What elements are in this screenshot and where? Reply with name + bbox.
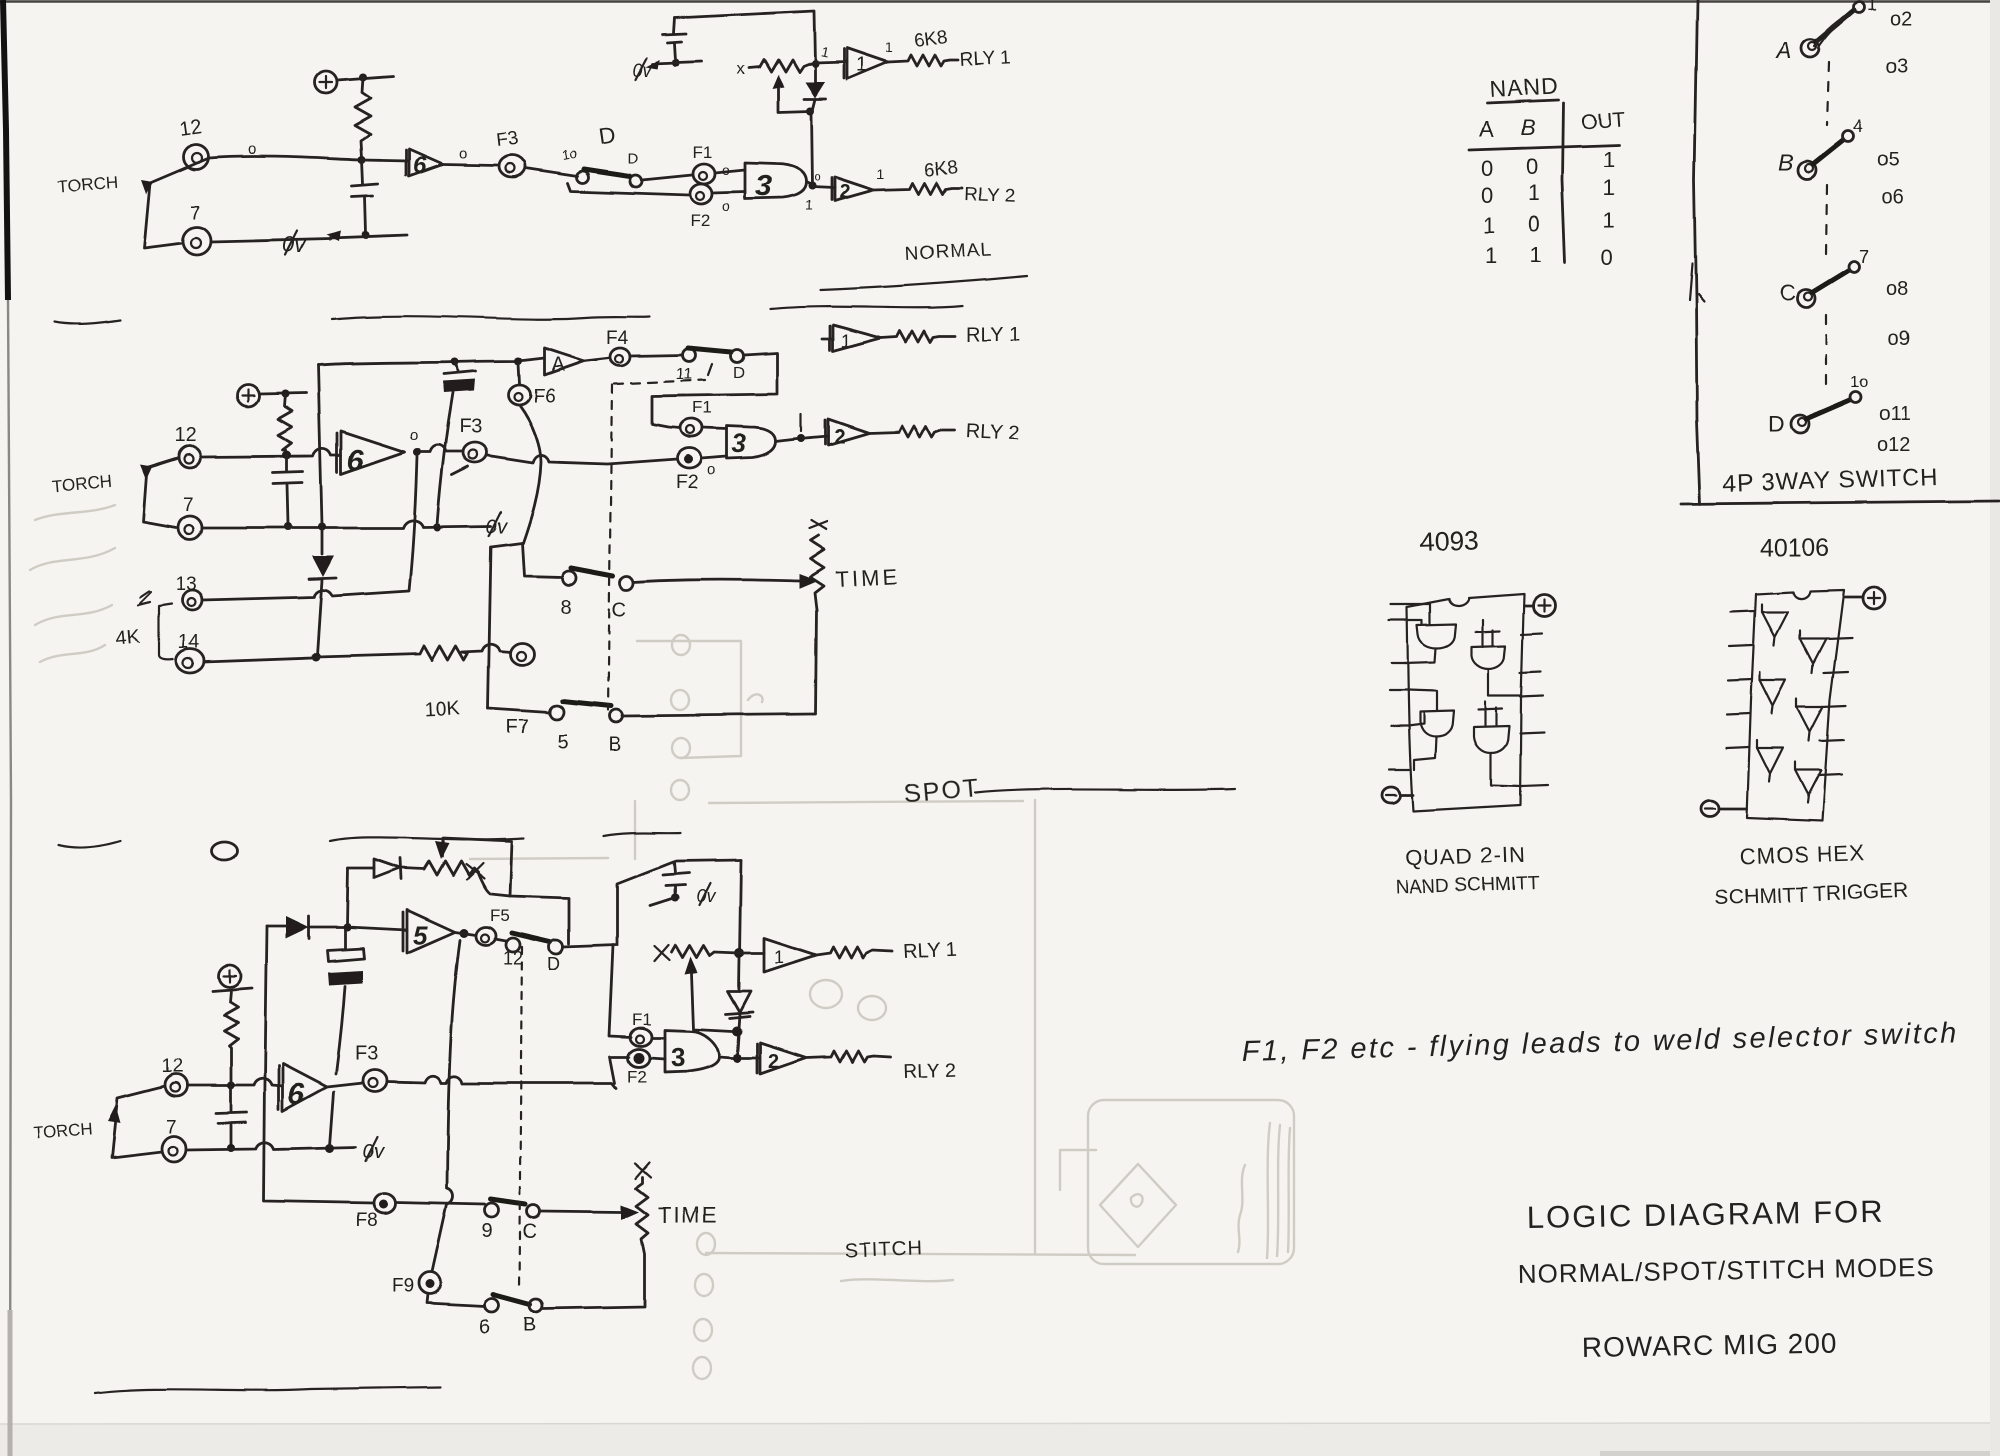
- svg-text:D: D: [547, 954, 560, 974]
- svg-text:4K: 4K: [115, 626, 142, 650]
- svg-text:1: 1: [877, 166, 885, 182]
- svg-text:13: 13: [176, 574, 197, 595]
- svg-text:1: 1: [856, 54, 867, 76]
- svg-text:o: o: [410, 427, 418, 444]
- svg-text:6K8: 6K8: [913, 27, 949, 52]
- svg-text:1: 1: [774, 947, 784, 967]
- svg-text:F1: F1: [693, 143, 713, 162]
- svg-text:8: 8: [560, 597, 571, 619]
- svg-text:3: 3: [671, 1042, 685, 1072]
- svg-text:F5: F5: [490, 906, 510, 925]
- svg-text:QUAD 2-IN: QUAD 2-IN: [1405, 842, 1526, 871]
- svg-text:C: C: [1779, 280, 1796, 306]
- svg-text:1: 1: [1483, 213, 1495, 238]
- svg-text:2: 2: [834, 426, 845, 448]
- svg-text:o11: o11: [1879, 403, 1911, 425]
- svg-text:0: 0: [1481, 156, 1493, 181]
- svg-text:12: 12: [175, 424, 197, 446]
- svg-text:LOGIC DIAGRAM FOR: LOGIC DIAGRAM FOR: [1527, 1194, 1885, 1235]
- svg-text:1: 1: [1528, 180, 1540, 205]
- svg-text:o: o: [722, 162, 730, 178]
- svg-text:0: 0: [1528, 211, 1540, 236]
- svg-text:F1: F1: [632, 1010, 652, 1029]
- svg-text:14: 14: [178, 632, 200, 653]
- svg-text:0: 0: [1526, 154, 1538, 179]
- svg-text:STITCH: STITCH: [844, 1237, 923, 1262]
- svg-text:F9: F9: [392, 1276, 414, 1297]
- svg-text:F3: F3: [459, 416, 482, 438]
- svg-text:B: B: [608, 734, 621, 756]
- svg-text:1: 1: [805, 197, 813, 213]
- svg-text:F2: F2: [690, 211, 710, 230]
- svg-text:6: 6: [288, 1078, 305, 1111]
- svg-text:1: 1: [885, 39, 893, 55]
- svg-text:o: o: [722, 198, 730, 214]
- svg-text:9: 9: [482, 1220, 493, 1242]
- svg-text:RLY 2: RLY 2: [902, 1059, 956, 1083]
- svg-text:1o: 1o: [1851, 374, 1869, 391]
- svg-text:o: o: [248, 141, 256, 158]
- svg-text:CMOS HEX: CMOS HEX: [1739, 840, 1865, 869]
- svg-text:A: A: [551, 354, 565, 376]
- svg-text:6: 6: [413, 152, 427, 179]
- svg-text:3: 3: [755, 170, 772, 203]
- svg-text:5: 5: [413, 920, 428, 950]
- svg-text:ROWARC MIG 200: ROWARC MIG 200: [1582, 1328, 1838, 1363]
- svg-text:RLY 2: RLY 2: [966, 420, 1021, 445]
- svg-text:1: 1: [1603, 208, 1615, 233]
- svg-text:o12: o12: [1877, 434, 1910, 456]
- svg-text:B: B: [523, 1314, 536, 1336]
- svg-text:B: B: [1778, 149, 1793, 175]
- svg-text:6K8: 6K8: [923, 157, 959, 182]
- svg-text:F3: F3: [355, 1043, 378, 1065]
- svg-text:1: 1: [1867, 0, 1877, 14]
- svg-text:OUT: OUT: [1580, 108, 1626, 134]
- svg-text:7: 7: [183, 495, 194, 516]
- svg-text:1: 1: [1530, 242, 1542, 267]
- svg-text:x: x: [737, 61, 745, 78]
- svg-text:0: 0: [1600, 245, 1612, 270]
- svg-text:NAND: NAND: [1489, 72, 1559, 102]
- svg-text:2: 2: [840, 181, 851, 203]
- svg-text:40106: 40106: [1760, 534, 1830, 562]
- svg-text:o: o: [814, 170, 821, 184]
- svg-text:o6: o6: [1882, 187, 1904, 209]
- svg-text:7: 7: [190, 203, 201, 224]
- svg-text:o9: o9: [1888, 328, 1910, 350]
- svg-text:RLY 2: RLY 2: [964, 184, 1016, 207]
- svg-text:F7: F7: [506, 716, 529, 738]
- svg-text:1o: 1o: [561, 146, 578, 163]
- svg-text:12: 12: [503, 948, 523, 968]
- svg-text:A: A: [1479, 117, 1494, 142]
- svg-text:o3: o3: [1886, 55, 1908, 77]
- svg-text:RLY 1: RLY 1: [959, 47, 1011, 71]
- svg-text:F4: F4: [606, 328, 629, 349]
- svg-text:F8: F8: [356, 1210, 378, 1231]
- svg-text:RLY 1: RLY 1: [966, 324, 1020, 346]
- svg-text:F3: F3: [495, 128, 519, 151]
- svg-text:12: 12: [162, 1056, 183, 1077]
- svg-text:3: 3: [732, 428, 747, 458]
- svg-text:1: 1: [841, 331, 851, 351]
- svg-text:6: 6: [347, 444, 364, 477]
- svg-text:0: 0: [1481, 183, 1493, 208]
- svg-text:1: 1: [1603, 175, 1615, 200]
- svg-text:1: 1: [1485, 243, 1497, 268]
- svg-text:D: D: [733, 365, 745, 382]
- svg-text:o: o: [707, 461, 715, 478]
- svg-text:7: 7: [166, 1117, 177, 1138]
- svg-text:5: 5: [558, 731, 569, 753]
- svg-text:D: D: [1768, 411, 1785, 437]
- svg-text:6: 6: [479, 1316, 490, 1338]
- svg-text:D: D: [628, 150, 639, 167]
- svg-text:7: 7: [1859, 247, 1869, 267]
- svg-text:10K: 10K: [424, 697, 461, 721]
- svg-text:o: o: [459, 145, 467, 162]
- svg-text:TIME: TIME: [835, 564, 901, 592]
- svg-text:F6: F6: [533, 386, 555, 407]
- svg-text:F2: F2: [627, 1067, 647, 1086]
- svg-text:1: 1: [1603, 147, 1615, 172]
- svg-text:12: 12: [178, 116, 203, 141]
- svg-text:TIME: TIME: [658, 1203, 719, 1228]
- svg-text:B: B: [1521, 115, 1536, 140]
- svg-text:o8: o8: [1886, 278, 1908, 300]
- svg-text:4: 4: [1853, 116, 1863, 136]
- svg-text:RLY 1: RLY 1: [903, 938, 958, 963]
- svg-text:F1: F1: [692, 398, 712, 417]
- svg-text:A: A: [1774, 37, 1791, 63]
- svg-text:o5: o5: [1877, 149, 1899, 171]
- svg-text:F2: F2: [676, 472, 698, 493]
- svg-text:C: C: [522, 1221, 536, 1243]
- svg-text:o2: o2: [1890, 8, 1912, 30]
- svg-text:4093: 4093: [1418, 525, 1479, 557]
- svg-text:C: C: [612, 599, 626, 621]
- svg-text:2: 2: [768, 1051, 779, 1073]
